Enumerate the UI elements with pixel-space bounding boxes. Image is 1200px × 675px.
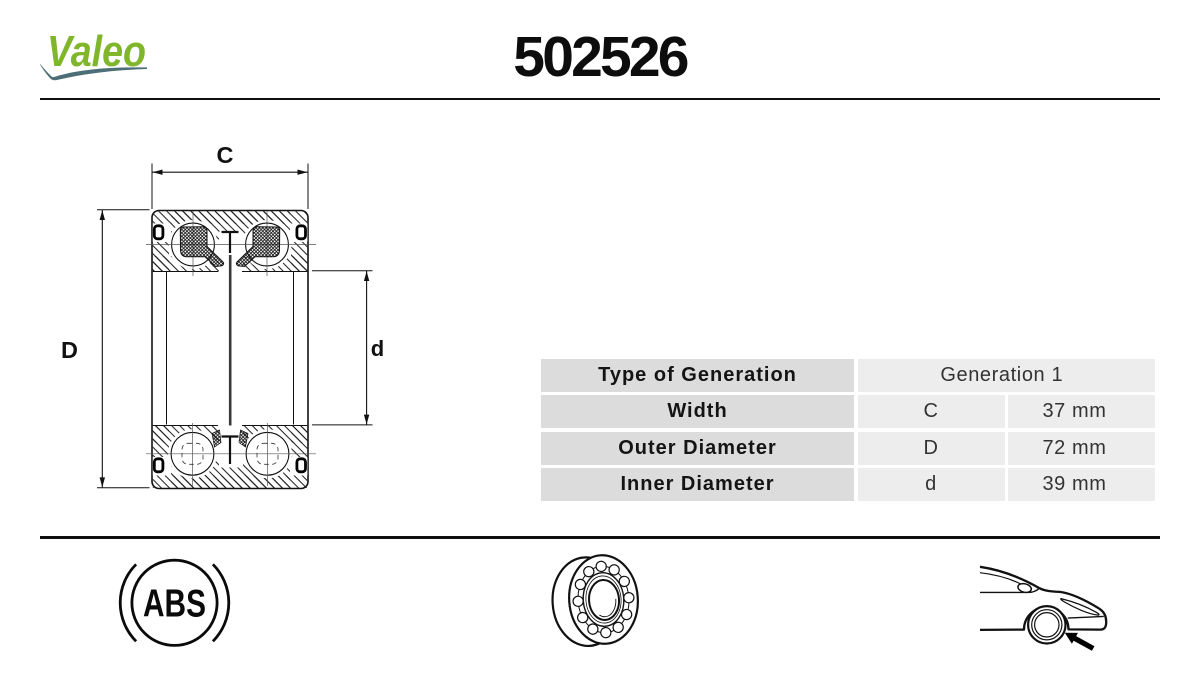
svg-text:d: d [371,336,384,361]
svg-text:D: D [61,337,78,363]
svg-text:C: C [217,142,234,168]
svg-text:ABS: ABS [143,583,206,626]
